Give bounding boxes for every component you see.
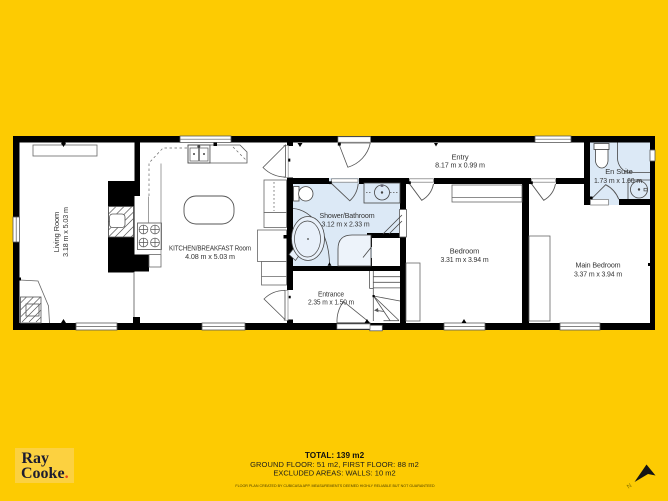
svg-text:2.35 m x 1.50 m: 2.35 m x 1.50 m	[308, 298, 354, 307]
svg-text:8.17 m x 0.99 m: 8.17 m x 0.99 m	[435, 161, 485, 170]
svg-text:EXCLUDED AREAS: WALLS: 10 m2: EXCLUDED AREAS: WALLS: 10 m2	[273, 468, 395, 477]
svg-text:3.37 m x 3.94 m: 3.37 m x 3.94 m	[574, 270, 622, 279]
svg-text:3.18 m x 5.03 m: 3.18 m x 5.03 m	[61, 207, 70, 257]
svg-text:FLOOR PLAN CREATED BY CUBICASA: FLOOR PLAN CREATED BY CUBICASA APP. MEAS…	[235, 484, 435, 488]
svg-text:3.12 m x 2.33 m: 3.12 m x 2.33 m	[322, 220, 370, 229]
svg-text:Main Bedroom: Main Bedroom	[576, 261, 621, 270]
svg-text:Living Room: Living Room	[52, 212, 61, 252]
svg-text:4.08 m x 5.03 m: 4.08 m x 5.03 m	[185, 252, 235, 261]
svg-text:En Suite: En Suite	[605, 167, 632, 176]
svg-text:3.31 m x 3.94 m: 3.31 m x 3.94 m	[441, 255, 489, 264]
svg-text:TOTAL: 139 m2: TOTAL: 139 m2	[305, 451, 365, 460]
svg-text:1.73 m x 1.60 m: 1.73 m x 1.60 m	[594, 176, 642, 185]
svg-text:Cooke.: Cooke.	[21, 465, 69, 482]
